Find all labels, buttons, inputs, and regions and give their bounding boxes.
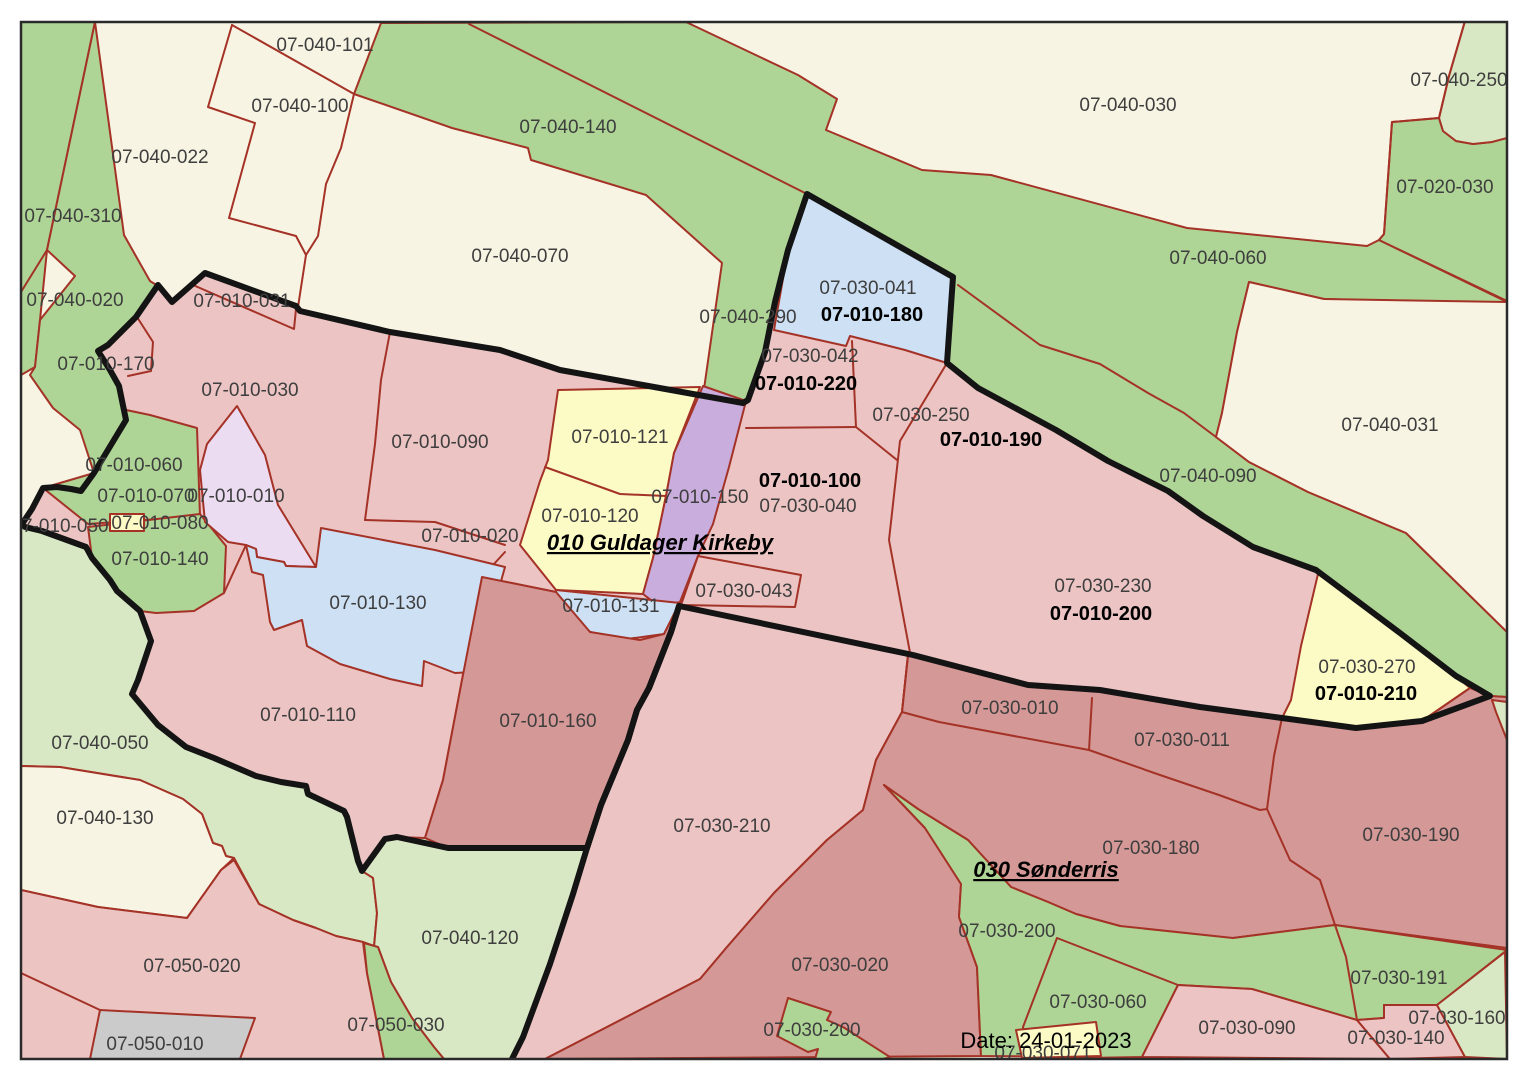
svg-text:07-040-100: 07-040-100 [251, 96, 348, 117]
svg-text:07-030-140: 07-030-140 [1347, 1028, 1444, 1049]
svg-text:07-030-250: 07-030-250 [872, 405, 969, 426]
svg-text:07-010-180: 07-010-180 [821, 304, 923, 326]
svg-text:07-010-170: 07-010-170 [57, 354, 154, 375]
svg-text:07-040-031: 07-040-031 [1341, 415, 1438, 436]
svg-text:07-030-060: 07-030-060 [1049, 992, 1146, 1013]
svg-text:07-030-200: 07-030-200 [763, 1020, 860, 1041]
svg-text:07-030-180: 07-030-180 [1102, 838, 1199, 859]
svg-text:07-010-210: 07-010-210 [1315, 683, 1417, 705]
svg-text:07-040-290: 07-040-290 [699, 307, 796, 328]
svg-text:07-010-031: 07-010-031 [193, 291, 290, 312]
svg-text:07-040-120: 07-040-120 [421, 928, 518, 949]
svg-text:07-030-230: 07-030-230 [1054, 576, 1151, 597]
svg-text:07-030-190: 07-030-190 [1362, 825, 1459, 846]
svg-text:07-010-120: 07-010-120 [541, 506, 638, 527]
svg-text:07-050-030: 07-050-030 [347, 1015, 444, 1036]
svg-text:07-030-191: 07-030-191 [1350, 968, 1447, 989]
svg-text:07-010-050: 07-010-050 [11, 516, 108, 537]
svg-text:07-020-030: 07-020-030 [1396, 177, 1493, 198]
svg-text:07-040-020: 07-040-020 [26, 290, 123, 311]
svg-text:07-030-040: 07-030-040 [759, 496, 856, 517]
svg-text:07-010-060: 07-010-060 [85, 455, 182, 476]
svg-text:07-030-270: 07-030-270 [1318, 657, 1415, 678]
svg-text:07-010-110: 07-010-110 [260, 705, 356, 726]
svg-text:07-030-200: 07-030-200 [958, 921, 1055, 942]
svg-text:07-010-220: 07-010-220 [755, 373, 857, 395]
svg-text:07-010-130: 07-010-130 [329, 593, 426, 614]
svg-text:07-010-010: 07-010-010 [187, 486, 284, 507]
svg-text:07-010-140: 07-010-140 [111, 549, 208, 570]
svg-text:Date: 24-01-2023: Date: 24-01-2023 [960, 1028, 1131, 1053]
svg-text:07-010-070: 07-010-070 [97, 486, 194, 507]
svg-text:07-030-210: 07-030-210 [673, 816, 770, 837]
svg-text:07-010-150: 07-010-150 [651, 487, 748, 508]
svg-text:07-010-090: 07-010-090 [391, 432, 488, 453]
svg-text:07-050-010: 07-050-010 [106, 1034, 203, 1055]
svg-text:07-030-011: 07-030-011 [1134, 730, 1230, 751]
svg-text:07-010-100: 07-010-100 [759, 470, 861, 492]
svg-text:07-030-041: 07-030-041 [819, 278, 916, 299]
svg-text:07-030-090: 07-030-090 [1198, 1018, 1295, 1039]
svg-text:07-040-022: 07-040-022 [111, 147, 208, 168]
svg-text:07-010-160: 07-010-160 [499, 711, 596, 732]
svg-text:07-010-030: 07-010-030 [201, 380, 298, 401]
svg-text:07-010-020: 07-010-020 [421, 526, 518, 547]
svg-text:07-040-130: 07-040-130 [56, 808, 153, 829]
svg-text:07-030-010: 07-030-010 [961, 698, 1058, 719]
svg-text:07-010-131: 07-010-131 [562, 596, 659, 617]
svg-text:07-040-101: 07-040-101 [276, 35, 373, 56]
svg-text:07-040-140: 07-040-140 [519, 117, 616, 138]
svg-text:07-010-080: 07-010-080 [111, 513, 208, 534]
svg-text:030 Sønderris: 030 Sønderris [973, 857, 1119, 882]
svg-text:07-040-070: 07-040-070 [471, 246, 568, 267]
svg-text:010 Guldager Kirkeby: 010 Guldager Kirkeby [547, 530, 775, 555]
svg-text:07-030-043: 07-030-043 [695, 581, 792, 602]
svg-text:07-040-090: 07-040-090 [1159, 466, 1256, 487]
svg-text:07-040-030: 07-040-030 [1079, 95, 1176, 116]
svg-text:07-030-042: 07-030-042 [761, 346, 858, 367]
svg-text:07-050-020: 07-050-020 [143, 956, 240, 977]
svg-text:07-040-250: 07-040-250 [1410, 70, 1507, 91]
svg-text:07-040-310: 07-040-310 [24, 206, 121, 227]
svg-text:07-040-060: 07-040-060 [1169, 248, 1266, 269]
svg-text:07-040-050: 07-040-050 [51, 733, 148, 754]
svg-text:07-010-190: 07-010-190 [940, 429, 1042, 451]
svg-text:07-010-200: 07-010-200 [1050, 603, 1152, 625]
svg-text:07-010-121: 07-010-121 [571, 427, 668, 448]
svg-text:07-030-020: 07-030-020 [791, 955, 888, 976]
svg-text:07-030-160: 07-030-160 [1408, 1008, 1505, 1029]
